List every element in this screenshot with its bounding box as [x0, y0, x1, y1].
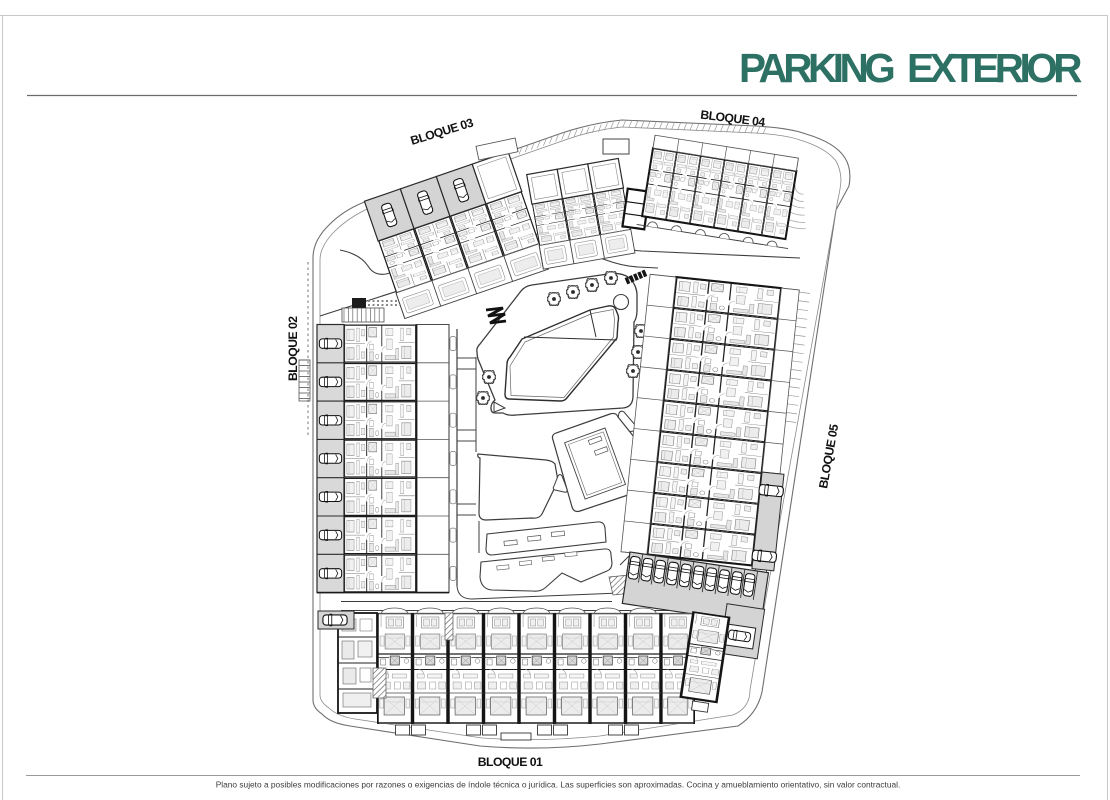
- svg-text:PARKING EXTERIOR: PARKING EXTERIOR: [739, 45, 1082, 91]
- svg-text:BLOQUE 01: BLOQUE 01: [478, 755, 543, 769]
- svg-text:BLOQUE 02: BLOQUE 02: [286, 316, 300, 381]
- svg-text:Plano sujeto a posibles modifi: Plano sujeto a posibles modificaciones p…: [216, 780, 901, 790]
